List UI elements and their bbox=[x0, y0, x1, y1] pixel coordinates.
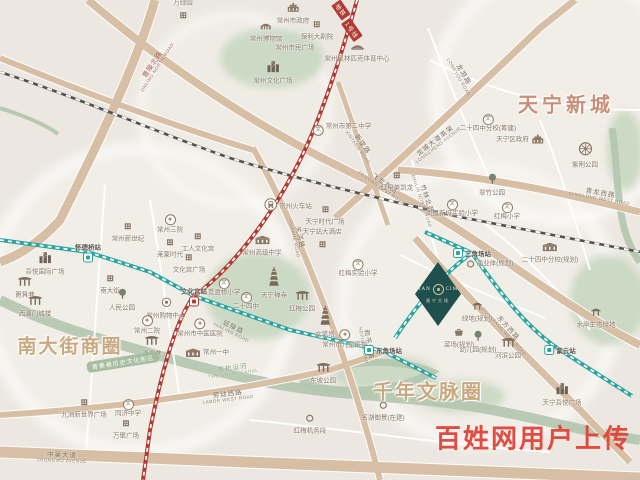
metro-station: 三角场站 bbox=[453, 248, 491, 258]
station-label: 紫云站 bbox=[556, 345, 576, 355]
road-label: 中吴大道ZHONGWU AVENUE bbox=[37, 451, 87, 465]
metro-station-badge-icon bbox=[189, 297, 199, 307]
metro-station: 文化宫站 bbox=[181, 286, 207, 307]
district-label: 天宁新城 bbox=[518, 89, 614, 118]
station-label: 东角场站 bbox=[376, 345, 402, 355]
metro-station-badge-icon bbox=[453, 248, 463, 258]
metro-station-badge-icon bbox=[544, 345, 554, 355]
district-label: 千年文脉圈 bbox=[373, 376, 483, 405]
project-logo-subtext: 唐宁大境 bbox=[426, 298, 450, 304]
metro-station: 东角场站 bbox=[364, 345, 402, 355]
station-label: 三角场站 bbox=[465, 248, 491, 258]
metro-station: 紫云站 bbox=[544, 345, 576, 355]
location-map: 天宁新城南大街商圈千年文脉圈 晋陵北路JINLING NORTH ROAD关河路… bbox=[0, 0, 640, 480]
metro-station-badge-icon bbox=[83, 253, 93, 263]
project-logo: TAN CIM bbox=[418, 284, 458, 295]
project-logo-right: CIM bbox=[446, 287, 458, 292]
station-label: 怀德桥站 bbox=[75, 242, 101, 252]
watermark: 百姓网用户上传 bbox=[435, 419, 631, 456]
project-logo-left: TAN bbox=[418, 287, 431, 292]
metro-station: 怀德桥站 bbox=[75, 242, 101, 263]
district-label: 南大街商圈 bbox=[17, 332, 122, 359]
project-medallion-icon bbox=[433, 284, 444, 295]
metro-station-badge-icon bbox=[364, 345, 374, 355]
map-base-layers bbox=[0, 0, 640, 480]
station-label: 文化宫站 bbox=[181, 286, 207, 296]
